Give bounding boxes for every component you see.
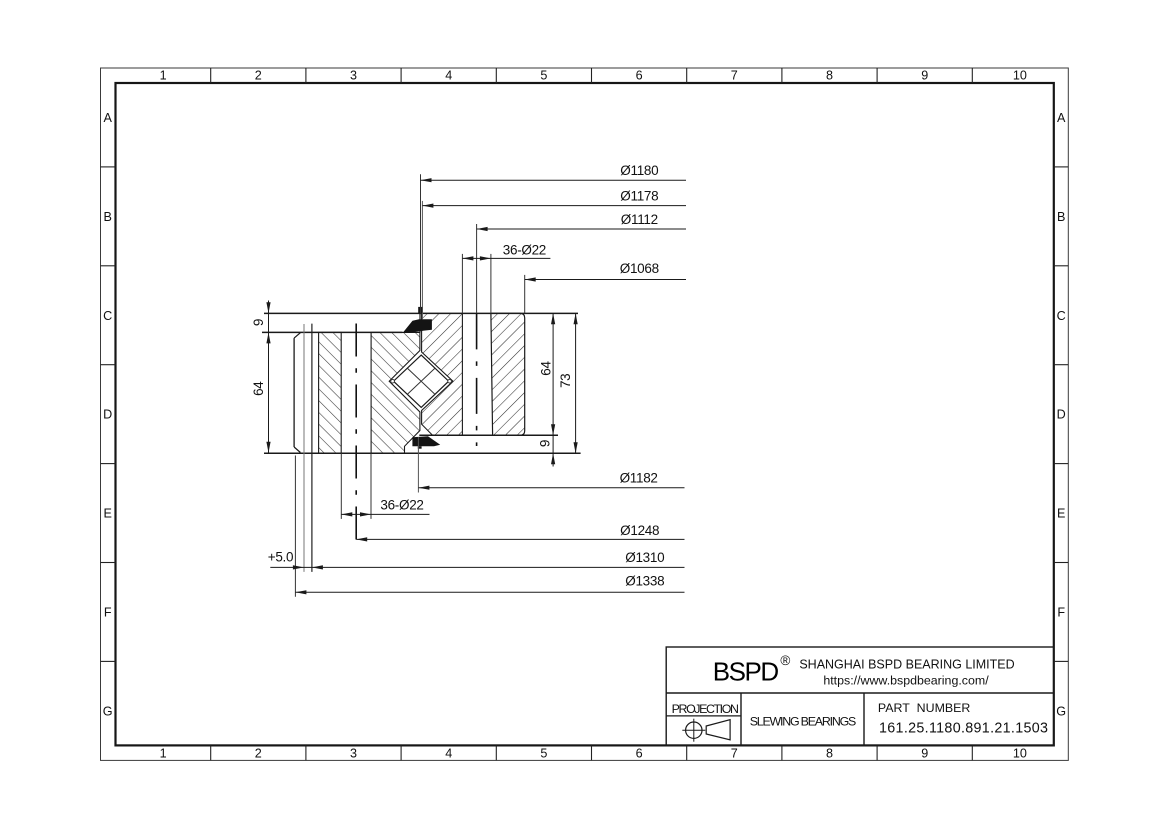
svg-text:PART NUMBER: PART NUMBER [878,701,971,715]
svg-text:9: 9 [921,69,928,83]
svg-text:7: 7 [731,69,738,83]
svg-text:2: 2 [255,69,262,83]
svg-text:Ø1112: Ø1112 [621,212,658,227]
svg-text:G: G [1056,704,1066,718]
svg-text:9: 9 [921,746,928,760]
svg-text:5: 5 [540,69,547,83]
svg-text:E: E [103,507,111,521]
svg-text:36-Ø22: 36-Ø22 [503,242,546,257]
svg-text:A: A [103,111,112,125]
svg-text:F: F [104,606,112,620]
svg-text:®: ® [780,653,790,668]
svg-text:9: 9 [538,440,553,447]
svg-text:7: 7 [731,746,738,760]
svg-text:F: F [1057,606,1065,620]
svg-text:3: 3 [350,69,357,83]
svg-text:8: 8 [826,69,833,83]
svg-text:6: 6 [636,746,643,760]
svg-text:PROJECTION: PROJECTION [672,702,738,716]
svg-text:6: 6 [636,69,643,83]
svg-text:Ø1338: Ø1338 [625,574,664,589]
svg-text:C: C [1057,309,1066,323]
svg-text:4: 4 [445,69,452,83]
svg-text:9: 9 [251,319,266,326]
svg-text:1: 1 [160,69,167,83]
svg-text:G: G [103,704,113,718]
svg-text:10: 10 [1013,69,1027,83]
svg-text:Ø1068: Ø1068 [620,261,659,276]
svg-text:2: 2 [255,746,262,760]
svg-text:SHANGHAI BSPD BEARING LIMITED: SHANGHAI BSPD BEARING LIMITED [799,657,1014,671]
svg-text:64: 64 [251,381,266,396]
svg-text:B: B [1057,210,1065,224]
svg-text:73: 73 [558,374,573,388]
svg-text:36-Ø22: 36-Ø22 [380,498,423,513]
svg-text:B: B [103,210,111,224]
svg-text:Ø1310: Ø1310 [625,550,664,565]
svg-text:Ø1178: Ø1178 [620,188,658,203]
svg-text:D: D [1057,408,1066,422]
svg-text:161.25.1180.891.21.1503: 161.25.1180.891.21.1503 [879,720,1048,736]
svg-text:10: 10 [1013,746,1027,760]
svg-text:C: C [103,309,112,323]
svg-text:SLEWING BEARINGS: SLEWING BEARINGS [750,715,856,729]
svg-text:3: 3 [350,746,357,760]
svg-text:https://www.bspdbearing.com/: https://www.bspdbearing.com/ [823,673,989,687]
svg-text:64: 64 [539,361,554,376]
svg-text:5: 5 [540,746,547,760]
svg-text:Ø1180: Ø1180 [620,163,658,178]
svg-text:4: 4 [445,746,452,760]
svg-text:Ø1248: Ø1248 [620,523,659,538]
svg-text:A: A [1057,111,1066,125]
svg-text:D: D [103,408,112,422]
svg-text:8: 8 [826,746,833,760]
svg-text:Ø1182: Ø1182 [620,470,658,485]
svg-text:BSPD: BSPD [713,656,779,686]
svg-text:1: 1 [160,746,167,760]
svg-text:E: E [1057,507,1065,521]
svg-text:+5.0: +5.0 [268,550,293,565]
